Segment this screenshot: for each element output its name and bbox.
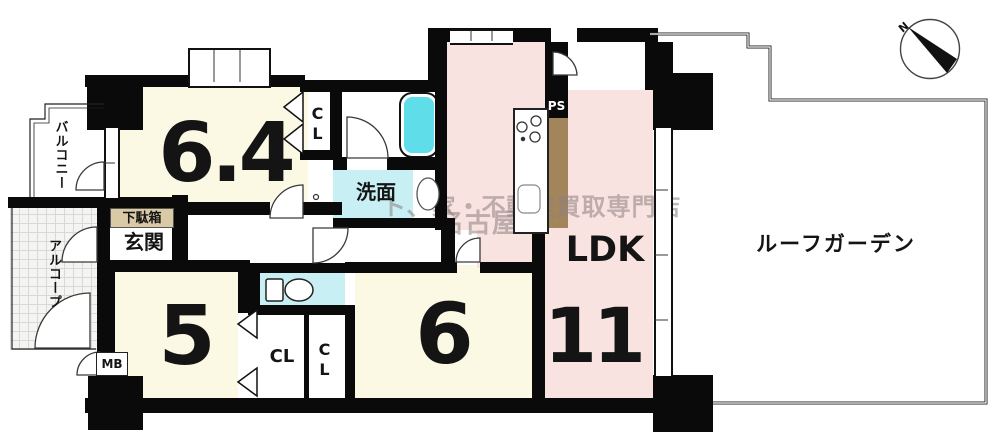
door-arc-ldk-corridor — [456, 238, 480, 262]
door-arc-washroom — [313, 228, 348, 263]
door-knob — [314, 195, 319, 200]
label-alcove: アルコープ — [44, 233, 63, 315]
label-pipe-shaft: PS — [545, 93, 568, 118]
door-arc-balcony — [76, 162, 104, 190]
label-closet-64: CL — [306, 96, 328, 152]
label-closet-5: CL — [260, 345, 304, 369]
label-ldk: LDK — [563, 232, 647, 268]
folding-door-cl5-a — [238, 310, 257, 338]
label-ldk-size: 11 — [543, 296, 643, 376]
roof-garden-outline — [650, 34, 986, 403]
door-arc-kitchen-top — [553, 52, 577, 75]
stove-icon — [517, 116, 541, 142]
label-closet-6: CL — [312, 330, 336, 390]
label-shoe-box: 下駄箱 — [110, 208, 174, 228]
label-bedroom-5: 5 — [150, 292, 220, 382]
label-bedroom-6: 6 — [405, 288, 480, 380]
label-meter-box: MB — [96, 352, 128, 376]
door-arc-bath — [347, 117, 388, 158]
folding-door-cl5-b — [238, 368, 257, 396]
compass: N — [896, 19, 959, 78]
floorplan-canvas: ト、家・不動産買取専門店 名古屋 — [0, 0, 1000, 447]
label-balcony: バルコニー — [50, 112, 70, 198]
label-entrance: 玄関 — [116, 229, 172, 255]
door-arc-entrance-inner — [62, 227, 97, 262]
kitchen-sink-icon — [518, 185, 540, 213]
label-roof-garden: ルーフガーデン — [756, 230, 916, 258]
label-bedroom-64: 6.4 — [145, 108, 305, 200]
label-washroom: 洗面 — [344, 180, 408, 204]
washbasin-icon — [417, 178, 439, 210]
toilet-icon — [266, 279, 313, 301]
